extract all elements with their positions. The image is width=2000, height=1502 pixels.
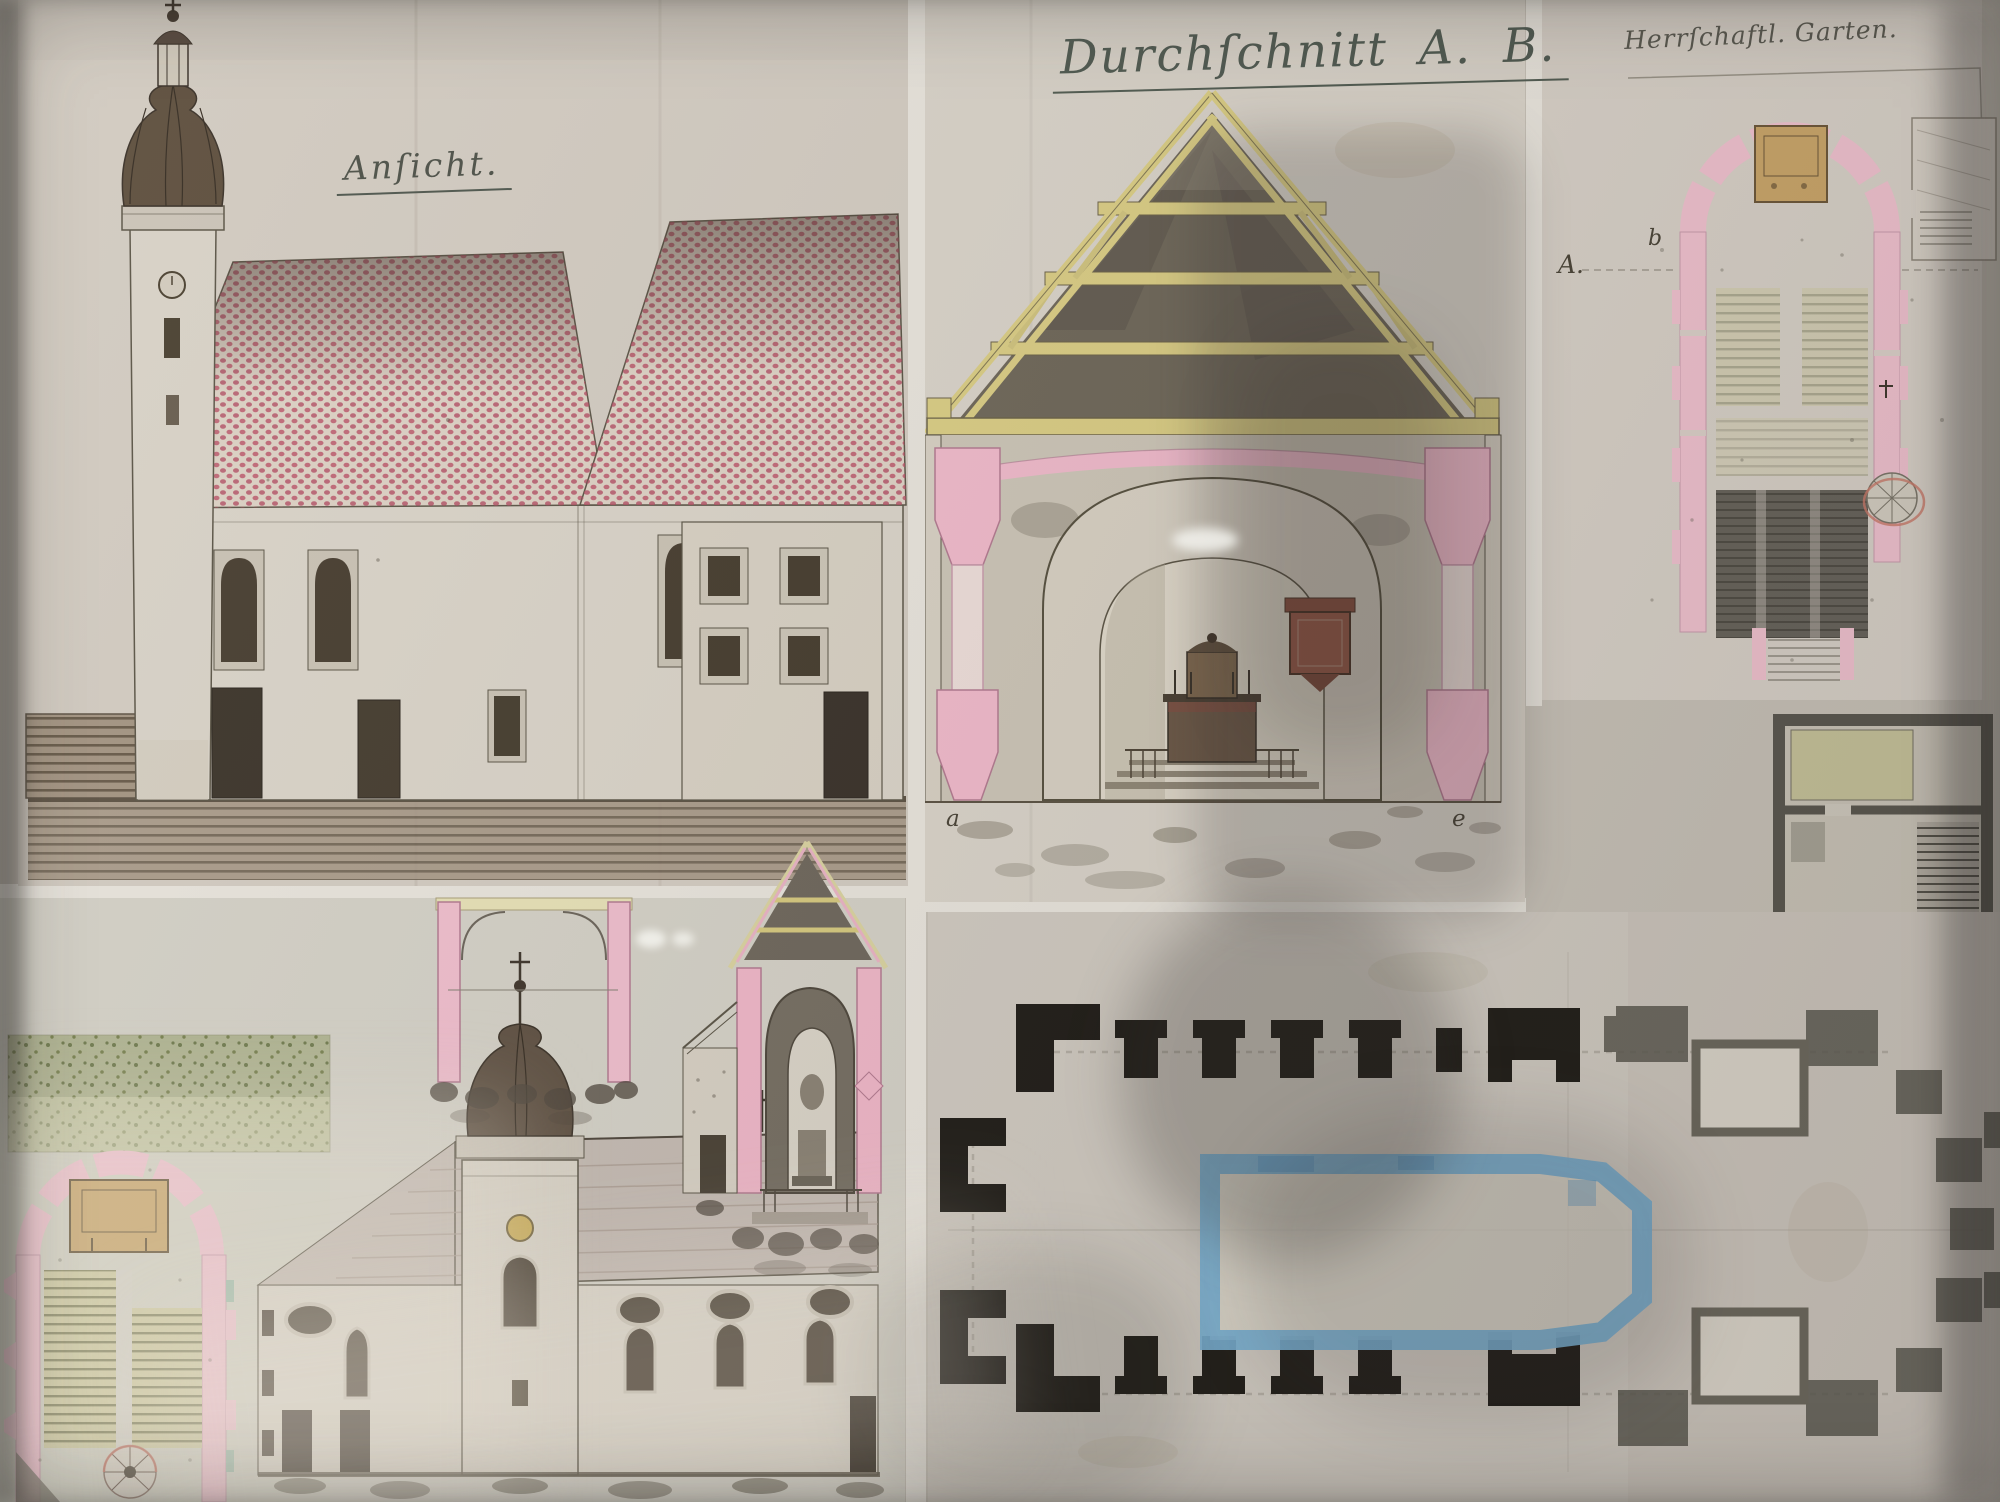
elevation-title: Anſicht. bbox=[335, 143, 512, 196]
entrance-steps bbox=[26, 714, 136, 798]
sheet-cross-section bbox=[925, 0, 1525, 902]
pews bbox=[1716, 288, 1868, 476]
sheet-garden-plan bbox=[1542, 0, 2000, 700]
section-pier-label-right: e bbox=[1452, 806, 1466, 832]
garden-plan-note-letter: b bbox=[1648, 226, 1662, 251]
garden-speckle bbox=[8, 1035, 330, 1152]
framed-architectural-drawings-photo: Anſicht. Durchſchnitt A. B. Herrſchaftl.… bbox=[0, 0, 2000, 1502]
organ-loft-stairs bbox=[1716, 490, 1868, 638]
gap-strip-vertical-right bbox=[1526, 0, 1542, 706]
sheet-combined bbox=[0, 840, 905, 1502]
plan-altar bbox=[70, 1180, 168, 1252]
sheet-elevation bbox=[18, 0, 908, 886]
altar-block bbox=[1755, 126, 1827, 202]
lantern bbox=[158, 44, 188, 86]
section-pier-label-left: a bbox=[946, 806, 960, 832]
annex-house bbox=[682, 522, 882, 800]
gap-strip-vertical-left bbox=[906, 0, 926, 1502]
plan-spiral-stair bbox=[104, 1446, 156, 1498]
blue-church-outline bbox=[1210, 1156, 1642, 1340]
sheet-large-floorplan bbox=[928, 912, 2000, 1502]
sacristy bbox=[1906, 118, 1996, 260]
garden-plan-section-letter: A. bbox=[1558, 250, 1584, 279]
